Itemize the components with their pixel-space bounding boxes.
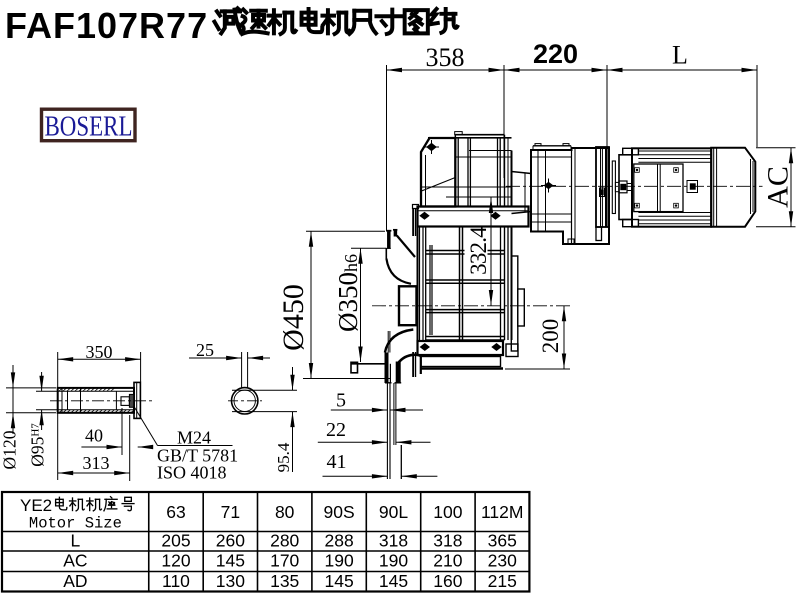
svg-text:200: 200: [538, 319, 563, 354]
svg-text:FAF107R77: FAF107R77: [5, 5, 208, 46]
svg-text:288: 288: [324, 531, 353, 551]
svg-text:YE2: YE2: [20, 496, 52, 515]
svg-text:260: 260: [216, 531, 245, 551]
svg-text:AC: AC: [63, 551, 87, 571]
svg-text:90S: 90S: [324, 502, 355, 522]
svg-text:170: 170: [270, 551, 299, 571]
svg-text:332.4: 332.4: [466, 226, 491, 275]
svg-text:230: 230: [488, 551, 517, 571]
svg-text:L: L: [71, 531, 81, 551]
svg-text:Ø120: Ø120: [0, 430, 20, 469]
svg-text:145: 145: [324, 571, 353, 591]
svg-text:130: 130: [216, 571, 245, 591]
svg-text:Ø95H7: Ø95H7: [28, 423, 48, 467]
svg-text:145: 145: [379, 571, 408, 591]
svg-text:80: 80: [275, 502, 295, 522]
svg-text:25: 25: [196, 340, 214, 360]
svg-text:40: 40: [85, 425, 103, 445]
svg-text:280: 280: [270, 531, 299, 551]
svg-text:90L: 90L: [379, 502, 408, 522]
svg-text:318: 318: [379, 531, 408, 551]
svg-text:220: 220: [533, 39, 578, 69]
svg-text:22: 22: [326, 419, 346, 441]
svg-text:5: 5: [336, 390, 346, 412]
svg-text:145: 145: [216, 551, 245, 571]
svg-text:205: 205: [161, 531, 190, 551]
svg-text:190: 190: [324, 551, 353, 571]
svg-text:358: 358: [426, 43, 465, 72]
svg-text:95.4: 95.4: [274, 442, 293, 472]
svg-text:215: 215: [488, 571, 517, 591]
svg-text:41: 41: [327, 451, 347, 473]
svg-text:120: 120: [161, 551, 190, 571]
svg-text:ISO 4018: ISO 4018: [157, 463, 227, 483]
svg-text:210: 210: [433, 551, 462, 571]
svg-text:313: 313: [83, 453, 110, 473]
svg-text:BOSERL: BOSERL: [45, 112, 133, 143]
svg-text:190: 190: [379, 551, 408, 571]
svg-text:365: 365: [488, 531, 517, 551]
svg-text:160: 160: [433, 571, 462, 591]
svg-text:110: 110: [162, 571, 190, 591]
svg-text:Ø350h6: Ø350h6: [333, 254, 363, 332]
svg-text:L: L: [672, 41, 688, 70]
svg-text:AD: AD: [63, 571, 87, 591]
svg-text:Ø450: Ø450: [277, 284, 310, 351]
svg-text:71: 71: [221, 502, 240, 522]
svg-text:AC: AC: [762, 166, 795, 208]
svg-text:350: 350: [86, 342, 113, 362]
svg-text:318: 318: [433, 531, 462, 551]
svg-text:M24: M24: [177, 428, 211, 448]
svg-text:100: 100: [433, 502, 462, 522]
svg-text:112M: 112M: [481, 502, 523, 522]
svg-text:63: 63: [166, 502, 185, 522]
svg-text:135: 135: [270, 571, 299, 591]
